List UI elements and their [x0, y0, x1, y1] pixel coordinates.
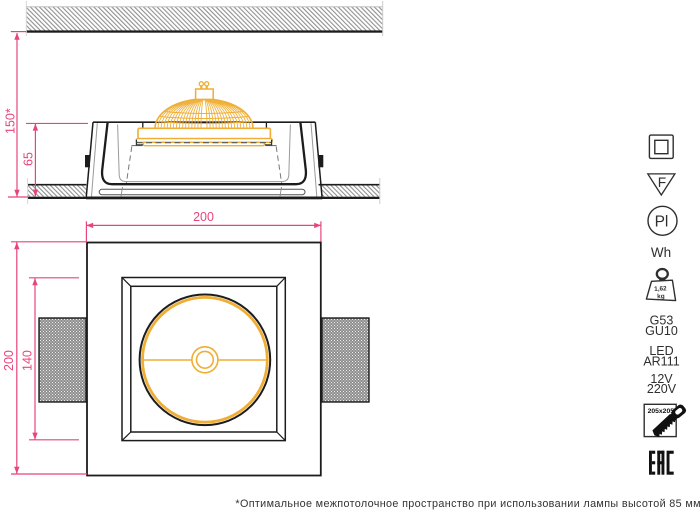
svg-text:F: F: [658, 175, 666, 190]
svg-text:Wh: Wh: [651, 245, 671, 260]
svg-text:65: 65: [22, 152, 36, 166]
svg-text:*Оптимальное межпотолочное про: *Оптимальное межпотолочное пространство …: [235, 498, 700, 510]
svg-text:150*: 150*: [4, 108, 18, 134]
svg-text:kg: kg: [657, 293, 665, 300]
svg-text:200: 200: [193, 210, 214, 224]
svg-text:Pl: Pl: [655, 214, 669, 231]
svg-text:220V: 220V: [647, 382, 677, 396]
svg-text:GU10: GU10: [645, 324, 678, 338]
svg-text:1,62: 1,62: [654, 285, 667, 293]
svg-text:205x205: 205x205: [648, 408, 675, 415]
svg-text:AR111: AR111: [643, 355, 679, 369]
svg-text:140: 140: [20, 350, 34, 371]
svg-text:200: 200: [2, 350, 16, 371]
